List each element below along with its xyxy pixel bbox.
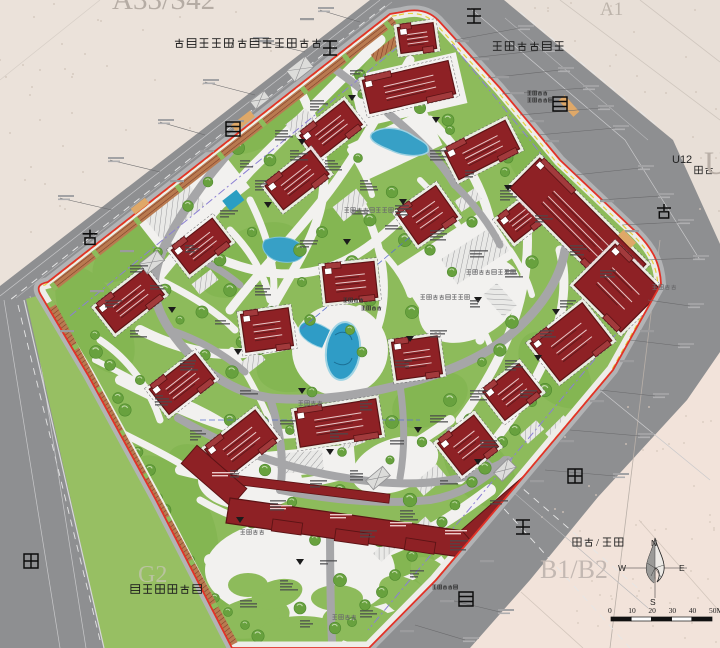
svg-text:30: 30	[669, 606, 677, 615]
svg-text:20: 20	[648, 606, 656, 615]
svg-text:50M: 50M	[709, 606, 720, 615]
svg-text:10: 10	[628, 606, 636, 615]
svg-text:G2: G2	[138, 562, 167, 588]
svg-text:0: 0	[608, 606, 612, 615]
svg-text:A33/S42: A33/S42	[112, 0, 215, 16]
svg-text:U: U	[704, 146, 720, 182]
svg-text:B1/B2: B1/B2	[540, 555, 608, 584]
svg-text:N: N	[651, 538, 657, 548]
svg-text:U12: U12	[672, 154, 692, 166]
svg-text:A1: A1	[600, 0, 623, 20]
svg-text:40: 40	[689, 606, 697, 615]
svg-text:E: E	[679, 563, 685, 573]
svg-text:W: W	[618, 563, 626, 573]
